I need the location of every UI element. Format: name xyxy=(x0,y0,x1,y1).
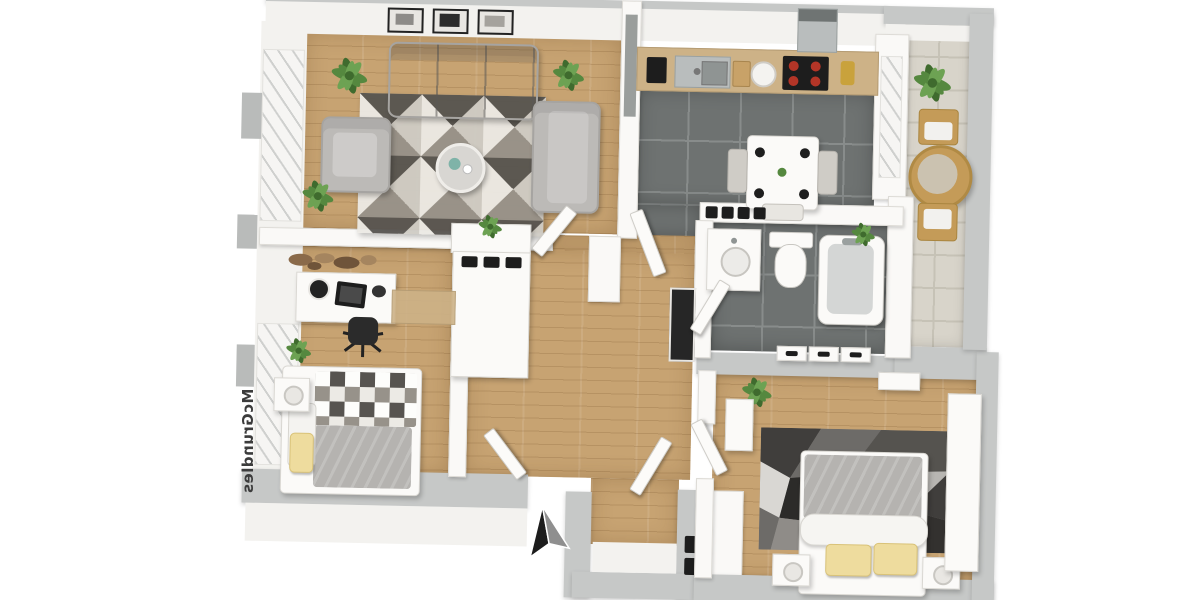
watermark-text: McGrundles xyxy=(239,381,257,501)
plate-1 xyxy=(755,147,765,157)
office-bed-duvet-pattern xyxy=(314,371,417,427)
north-arrow-icon xyxy=(516,500,577,564)
balcony-chair-1-cushion xyxy=(924,122,952,141)
extractor-hood xyxy=(797,8,838,53)
bedroom-lamp-left xyxy=(783,562,803,582)
wardrobe-slot-2 xyxy=(483,257,499,268)
office-bed-duvet-gray xyxy=(313,425,412,489)
dining-chair-left xyxy=(727,149,748,193)
plate-3 xyxy=(754,188,764,198)
bedroom-wardrobe xyxy=(944,393,982,572)
office-nightstand-lamp xyxy=(284,385,304,405)
coffee-table-decor xyxy=(448,158,460,170)
bed-duvet xyxy=(803,454,922,520)
kitchen-tall-cabinet xyxy=(624,14,638,116)
armchair-cushion xyxy=(332,132,377,177)
wall-hall-bedroom-a xyxy=(697,370,716,424)
plant-living-2 xyxy=(548,55,589,96)
bath-shelf-4 xyxy=(754,207,766,219)
vanity-sink-bowl xyxy=(720,247,751,278)
plant-balcony xyxy=(908,58,957,107)
entry-wall-inner-face xyxy=(592,542,677,574)
toilet-bowl xyxy=(774,244,807,289)
laptop-screen xyxy=(339,285,363,304)
sink-basin xyxy=(701,61,727,86)
bedroom-nightstand-left xyxy=(772,554,811,587)
wall-picture-1 xyxy=(387,7,424,33)
entry-door-wall xyxy=(710,490,744,579)
balcony-door-glass xyxy=(878,56,903,178)
plant-hall xyxy=(475,211,506,242)
picture-image-1 xyxy=(396,14,414,25)
hood-vent xyxy=(799,9,837,22)
wall-picture-3 xyxy=(477,9,514,35)
balcony-chair-2-cushion xyxy=(923,209,951,230)
sofa-backrest xyxy=(391,44,537,63)
loveseat xyxy=(531,101,601,214)
vanity-faucet xyxy=(731,238,737,244)
radiator-label-1 xyxy=(786,351,798,356)
floor-plan xyxy=(0,0,1200,600)
plant-bathtub xyxy=(847,219,880,250)
coffee-table-tray xyxy=(462,164,472,174)
cutting-board xyxy=(732,61,751,87)
balcony-chair-1 xyxy=(918,109,959,146)
bath-shelf-1 xyxy=(706,206,718,218)
wall-picture-2 xyxy=(432,8,469,34)
office-chair xyxy=(339,311,388,360)
burner-3 xyxy=(788,76,798,86)
burner-2 xyxy=(811,61,821,71)
office-nightstand xyxy=(273,377,310,412)
dining-chair-bottom xyxy=(761,203,803,221)
radiator-segment-1 xyxy=(777,346,807,362)
balcony-table-top xyxy=(917,154,958,195)
dining-table xyxy=(746,135,820,210)
window-sill-2 xyxy=(237,214,258,248)
plate-2 xyxy=(800,148,810,158)
plant-living-3 xyxy=(297,176,338,217)
wall-door-stub xyxy=(588,236,621,303)
bedroom-dresser-top xyxy=(878,372,920,391)
sofa xyxy=(388,42,540,121)
sink-faucet xyxy=(694,68,701,75)
bedroom-dresser-left xyxy=(725,399,754,452)
laptop xyxy=(334,281,367,309)
wall-hall-bedroom-b xyxy=(694,478,714,578)
radiator-label-2 xyxy=(818,352,830,357)
balcony-chair-2 xyxy=(917,203,958,242)
coffee-machine xyxy=(646,57,667,83)
dining-chair-right xyxy=(817,151,838,195)
burner-1 xyxy=(789,61,799,71)
hall-wardrobe xyxy=(450,251,531,379)
desk-side-table xyxy=(391,290,456,325)
bathroom-vanity xyxy=(706,228,761,291)
floor-plan-image: McGrundles xyxy=(0,0,1200,600)
table-centerpiece xyxy=(777,168,786,177)
bed-pillow-yellow-1 xyxy=(825,544,872,577)
burner-4 xyxy=(810,76,820,86)
plant-living-1 xyxy=(326,52,373,99)
loveseat-cushion xyxy=(547,111,589,204)
plant-office xyxy=(282,333,315,368)
cooktop xyxy=(782,56,829,91)
picture-image-2 xyxy=(439,14,459,27)
bed xyxy=(798,450,929,597)
wardrobe-slot-3 xyxy=(505,257,521,268)
radiator-segment-2 xyxy=(809,346,839,362)
counter-gold-decor xyxy=(840,61,854,85)
bath-shelf-2 xyxy=(722,207,734,219)
outer-wall-office-south-face xyxy=(245,503,528,547)
radiator-label-3 xyxy=(850,352,862,357)
watermark: McGrundles xyxy=(188,432,308,452)
bath-shelf-3 xyxy=(738,207,750,219)
kitchen-sink xyxy=(674,56,731,89)
wardrobe-slot-1 xyxy=(461,256,477,267)
picture-image-3 xyxy=(484,16,504,27)
window-sill-1 xyxy=(241,92,262,138)
bathtub-basin xyxy=(827,244,874,315)
plate-4 xyxy=(799,189,809,199)
bed-pillow-yellow-2 xyxy=(873,543,918,576)
radiator-segment-3 xyxy=(841,347,871,363)
